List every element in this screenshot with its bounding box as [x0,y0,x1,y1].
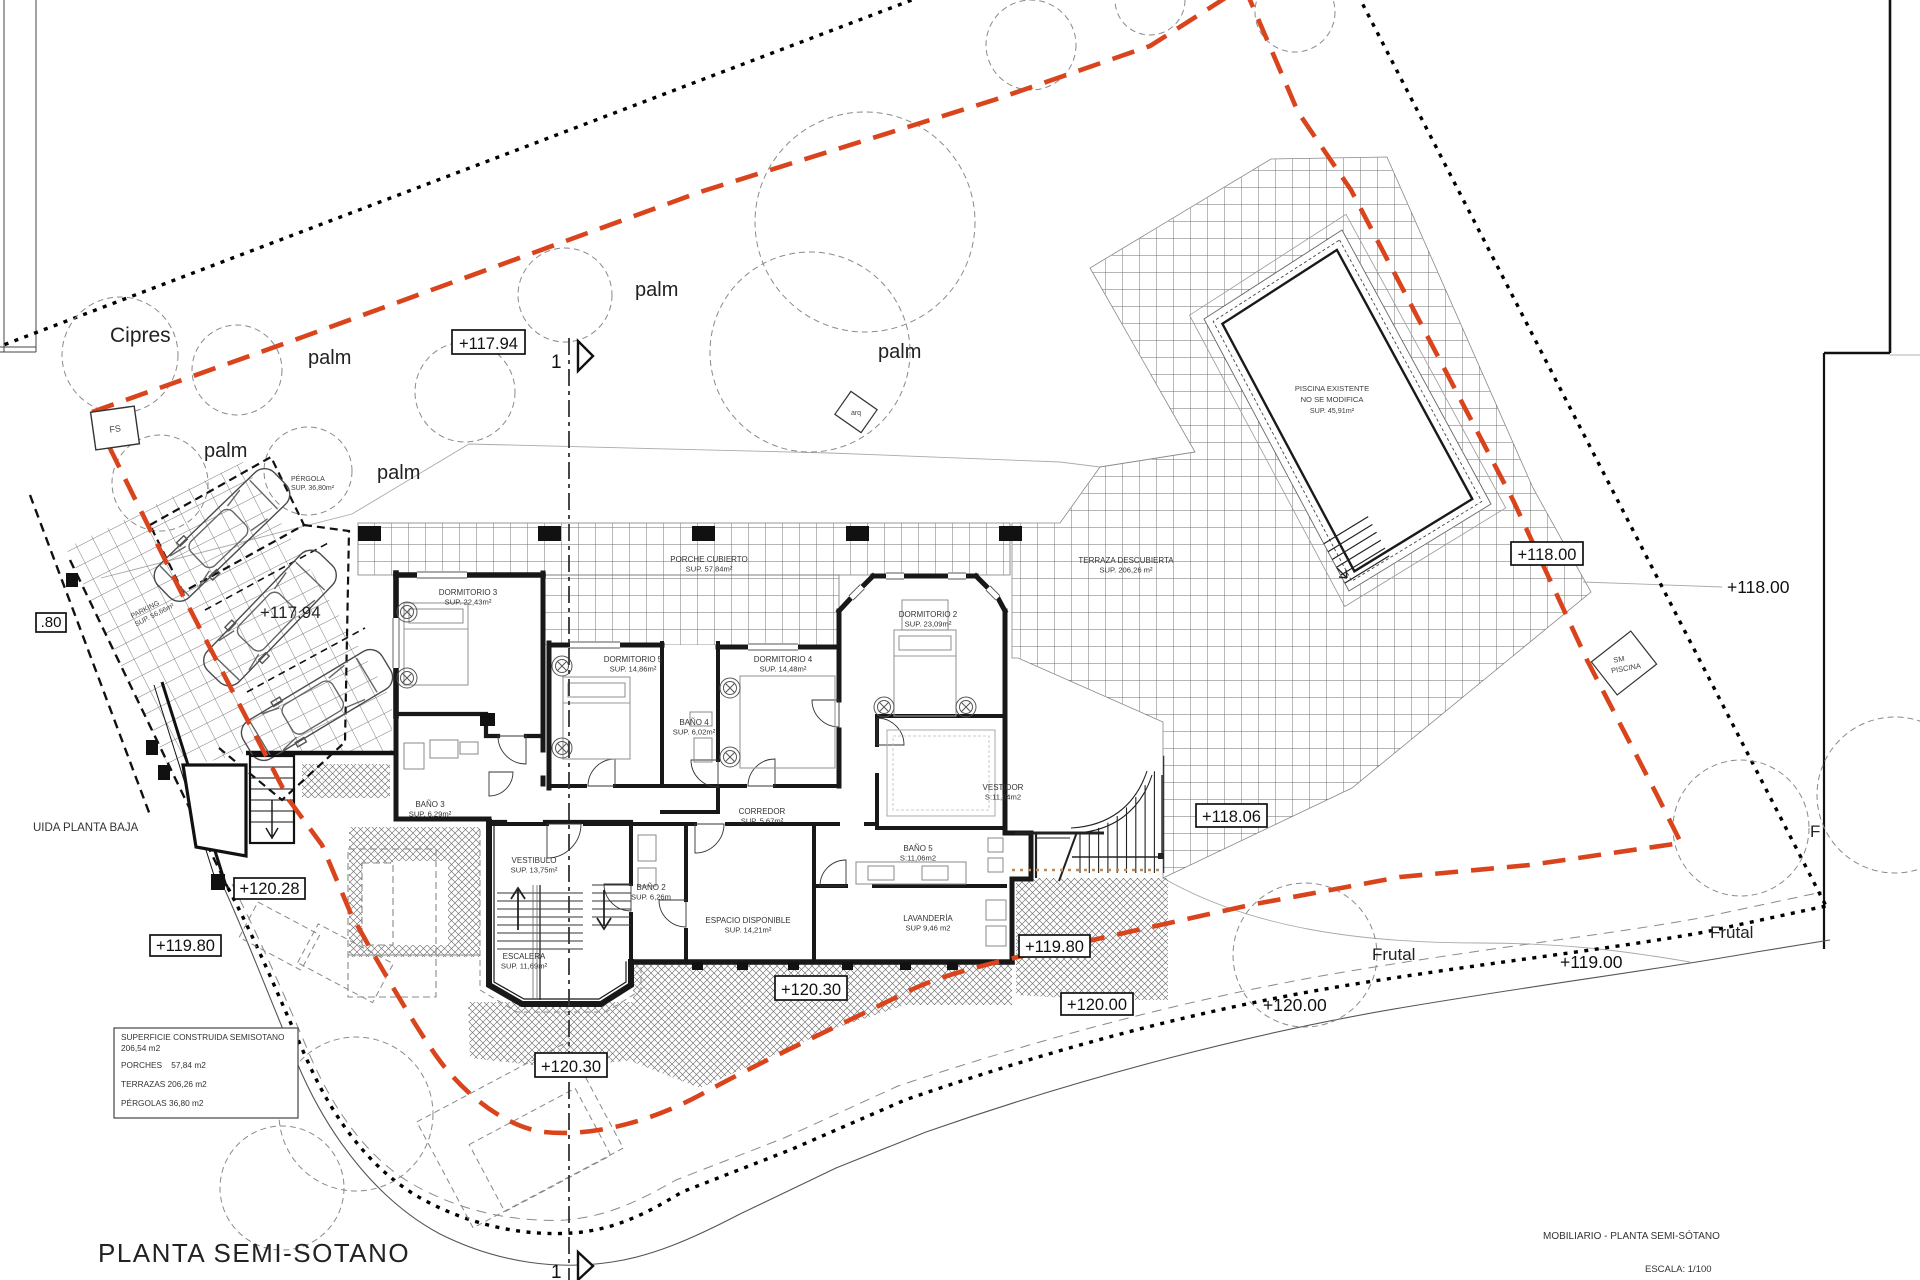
svg-text:1: 1 [551,352,562,373]
svg-text:SM: SM [1613,654,1626,665]
svg-text:+118.00: +118.00 [1518,546,1577,564]
svg-text:BAÑO 5: BAÑO 5 [903,844,933,853]
svg-text:Frutal: Frutal [1710,923,1753,942]
svg-text:BAÑO 4: BAÑO 4 [679,718,709,727]
svg-text:+118.00: +118.00 [1727,577,1790,597]
svg-text:SUP. 14,48m²: SUP. 14,48m² [760,665,807,674]
svg-text:SUP. 6,29m²: SUP. 6,29m² [409,810,452,819]
svg-text:palm: palm [878,341,921,363]
svg-text:+118.06: +118.06 [1202,808,1261,826]
svg-text:VESTIBULO: VESTIBULO [512,856,557,865]
svg-text:+119.80: +119.80 [156,937,215,955]
svg-text:SUP. 206,26 m²: SUP. 206,26 m² [1099,566,1153,575]
svg-text:+117.94: +117.94 [260,603,321,622]
svg-text:SUPERFICIE CONSTRUIDA SEMISOTA: SUPERFICIE CONSTRUIDA SEMISOTANO [121,1032,285,1042]
svg-text:S:11,94m2: S:11,94m2 [985,793,1021,802]
svg-text:S:11,06m2: S:11,06m2 [900,854,936,863]
svg-text:ESCALERA: ESCALERA [503,952,546,961]
svg-text:+120.00: +120.00 [1067,996,1127,1014]
svg-text:BAÑO 3: BAÑO 3 [415,800,445,809]
svg-text:+120.00: +120.00 [1263,995,1327,1015]
svg-text:arq: arq [851,410,861,417]
svg-text:TERRAZAS 206,26 m2: TERRAZAS 206,26 m2 [121,1079,207,1089]
svg-text:SUP. 45,91m²: SUP. 45,91m² [1310,406,1355,415]
svg-text:SUP. 22,43m²: SUP. 22,43m² [445,598,492,607]
svg-text:NO SE MODIFICA: NO SE MODIFICA [1301,395,1365,404]
svg-text:FS: FS [109,423,122,435]
svg-text:ESCALA: 1/100: ESCALA: 1/100 [1645,1264,1712,1275]
svg-text:PISCINA EXISTENTE: PISCINA EXISTENTE [1295,384,1369,393]
svg-text:SUP. 14,21m²: SUP. 14,21m² [725,926,772,935]
svg-text:SUP. 6,26m: SUP. 6,26m [631,893,671,902]
svg-text:SUP. 23,09m²: SUP. 23,09m² [905,620,952,629]
svg-text:PÉRGOLAS 36,80 m2: PÉRGOLAS 36,80 m2 [121,1098,204,1108]
svg-text:Cipres: Cipres [110,324,171,347]
svg-text:BAÑO 2: BAÑO 2 [636,883,666,892]
svg-text:ESPACIO DISPONIBLE: ESPACIO DISPONIBLE [705,916,790,925]
svg-text:SUP. 11,69m²: SUP. 11,69m² [501,962,548,971]
svg-text:SUP. 14,86m²: SUP. 14,86m² [610,665,657,674]
svg-text:CORREDOR: CORREDOR [739,807,786,816]
svg-text:+119.00: +119.00 [1560,952,1623,972]
svg-text:Frutal: Frutal [1372,945,1415,964]
svg-text:SUP. 36,80m²: SUP. 36,80m² [291,485,335,492]
svg-text:DORMITORIO 2: DORMITORIO 2 [899,610,958,619]
svg-text:+120.28: +120.28 [239,880,299,898]
svg-text:+119.80: +119.80 [1025,938,1084,956]
svg-text:palm: palm [377,462,420,484]
svg-text:SUP. 6,02m²: SUP. 6,02m² [673,728,716,737]
svg-text:TERRAZA DESCUBIERTA: TERRAZA DESCUBIERTA [1078,556,1174,565]
svg-text:DORMITORIO 4: DORMITORIO 4 [754,655,813,664]
svg-text:+120.30: +120.30 [781,981,841,999]
svg-text:SUP. 13,75m²: SUP. 13,75m² [511,866,558,875]
svg-text:PÉRGOLA: PÉRGOLA [291,474,325,483]
svg-text:206,54 m2: 206,54 m2 [121,1043,161,1053]
svg-text:SUP 9,46 m2: SUP 9,46 m2 [905,924,950,933]
svg-text:PLANTA SEMI-SOTANO: PLANTA SEMI-SOTANO [98,1238,410,1268]
svg-text:F: F [1810,822,1820,841]
svg-text:VESTIDOR: VESTIDOR [983,783,1024,792]
svg-text:LAVANDERÍA: LAVANDERÍA [903,914,953,923]
svg-text:1: 1 [551,1262,562,1280]
svg-text:+120.30: +120.30 [541,1058,601,1076]
svg-text:PORCHES 57,84 m2: PORCHES 57,84 m2 [121,1060,206,1070]
svg-text:UIDA PLANTA BAJA: UIDA PLANTA BAJA [33,822,139,834]
svg-text:+117.94: +117.94 [459,335,518,353]
svg-text:SUP. 57,84m²: SUP. 57,84m² [686,565,733,574]
svg-text:DORMITORIO 3: DORMITORIO 3 [439,588,498,597]
svg-text:PORCHE CUBIERTO: PORCHE CUBIERTO [670,555,748,564]
svg-text:MOBILIARIO - PLANTA SEMI-SÓTAN: MOBILIARIO - PLANTA SEMI-SÓTANO [1543,1229,1720,1242]
svg-text:palm: palm [635,279,678,301]
svg-text:SUP. 5,67m²: SUP. 5,67m² [741,817,784,826]
svg-text:palm: palm [308,347,351,369]
svg-text:.80: .80 [41,614,62,631]
svg-text:DORMITORIO 5: DORMITORIO 5 [604,655,663,664]
svg-text:palm: palm [204,440,247,462]
